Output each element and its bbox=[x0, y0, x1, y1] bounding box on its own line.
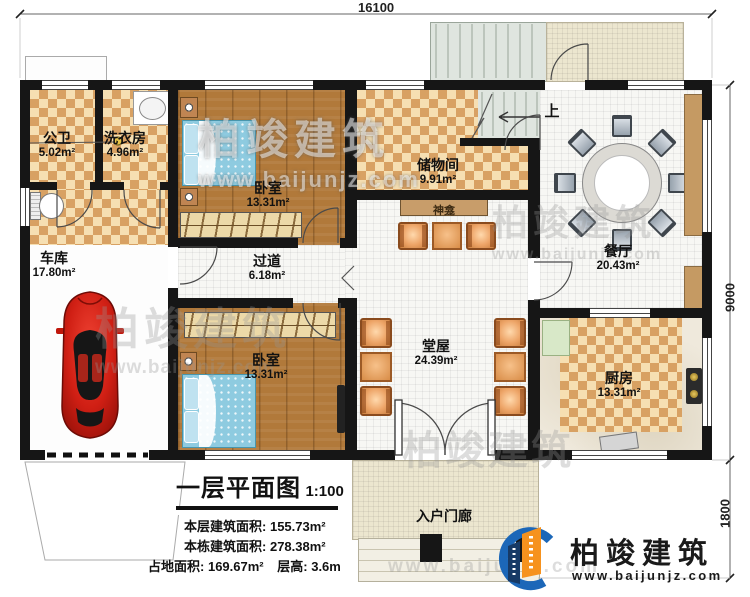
room-label-garage: 车库 17.80m² bbox=[33, 250, 76, 280]
room-name: 入户门廊 bbox=[416, 508, 472, 524]
pillow bbox=[184, 155, 199, 185]
wall-segment bbox=[310, 450, 395, 460]
wall-segment bbox=[345, 190, 540, 200]
room-area: 9.91m² bbox=[417, 173, 459, 187]
plan-title: 一层平面图 bbox=[176, 475, 301, 502]
legend-value: 278.38m² bbox=[270, 539, 326, 554]
room-label-dining: 餐厅 20.43m² bbox=[597, 243, 640, 273]
room-area: 4.96m² bbox=[104, 146, 146, 160]
room-name: 厨房 bbox=[598, 370, 641, 386]
armchair bbox=[360, 318, 392, 348]
room-name: 洗衣房 bbox=[104, 130, 146, 146]
room-label-porch: 入户门廊 bbox=[416, 508, 472, 524]
dining-chair bbox=[612, 115, 632, 137]
legend-label: 层高: bbox=[267, 559, 307, 574]
window bbox=[20, 188, 30, 226]
wall-segment bbox=[20, 90, 30, 460]
legend-value: 155.73m² bbox=[270, 519, 326, 534]
room-area: 13.31m² bbox=[245, 368, 288, 382]
stair-landing bbox=[546, 22, 684, 82]
wall-segment bbox=[178, 238, 298, 248]
room-label-bedroom2: 卧室 13.31m² bbox=[245, 352, 288, 382]
wall-segment bbox=[650, 308, 712, 318]
interior-stair-flight bbox=[478, 90, 540, 138]
wall-segment bbox=[345, 90, 357, 238]
room-name: 公卫 bbox=[39, 130, 75, 146]
room-label-kitchen: 厨房 13.31m² bbox=[598, 370, 641, 400]
room-area: 24.39m² bbox=[415, 354, 458, 368]
legend-label: 占地面积: bbox=[148, 559, 204, 574]
logo-brand-text: 柏竣建筑 bbox=[570, 530, 714, 572]
wall-segment bbox=[95, 90, 103, 182]
wall-segment bbox=[160, 182, 168, 190]
legend: 一层平面图 1:100 本层建筑面积: 155.73m² 本栋建筑面积: 278… bbox=[176, 468, 344, 577]
armchair bbox=[466, 222, 496, 250]
wall-segment bbox=[149, 450, 205, 460]
window bbox=[205, 450, 310, 460]
toilet-bowl bbox=[39, 193, 64, 219]
legend-value: 3.6m bbox=[311, 559, 341, 574]
legend-row: 本层建筑面积: 155.73m² bbox=[176, 517, 344, 537]
nightstand bbox=[180, 352, 197, 371]
wall-segment bbox=[168, 288, 178, 450]
plan-scale: 1:100 bbox=[305, 483, 343, 500]
room-area: 13.31m² bbox=[247, 196, 290, 210]
room-label-hallway: 过道 6.18m² bbox=[249, 253, 285, 283]
wall-segment bbox=[168, 90, 178, 247]
wall-segment bbox=[528, 308, 590, 318]
company-logo: 柏竣建筑 www.baijunjz.com bbox=[484, 524, 564, 597]
armchair bbox=[398, 222, 428, 250]
logo-mark-icon bbox=[484, 524, 564, 592]
wardrobe bbox=[180, 212, 302, 238]
window bbox=[112, 80, 160, 90]
room-area: 6.18m² bbox=[249, 269, 285, 283]
room-area: 20.43m² bbox=[597, 259, 640, 273]
window bbox=[366, 80, 424, 90]
pillow bbox=[184, 378, 199, 410]
legend-label: 本层建筑面积: bbox=[184, 519, 266, 534]
tv bbox=[337, 385, 345, 433]
driveway bbox=[25, 462, 185, 560]
wall-segment bbox=[528, 140, 540, 258]
room-area: 17.80m² bbox=[33, 266, 76, 280]
wall-segment bbox=[90, 182, 124, 190]
window bbox=[42, 80, 88, 90]
wall-segment bbox=[338, 298, 357, 308]
dining-chair bbox=[554, 173, 576, 193]
room-label-bedroom1: 卧室 13.31m² bbox=[247, 180, 290, 210]
room-name: 堂屋 bbox=[415, 338, 458, 354]
window bbox=[628, 80, 684, 90]
armchair bbox=[494, 386, 526, 416]
wall-segment bbox=[528, 300, 540, 450]
legend-row: 占地面积: 169.67m² 层高: 3.6m bbox=[148, 557, 344, 577]
legend-title-row: 一层平面图 1:100 bbox=[176, 468, 344, 503]
porch-pillar bbox=[420, 534, 442, 562]
pass-through-window bbox=[590, 308, 650, 318]
nightstand bbox=[180, 97, 198, 118]
room-label-bath: 公卫 5.02m² bbox=[39, 130, 75, 160]
kitchen-counter bbox=[542, 320, 570, 356]
dimension-top: 16100 bbox=[358, 0, 394, 15]
laundry-sink bbox=[139, 97, 166, 120]
room-name: 餐厅 bbox=[597, 243, 640, 259]
legend-value: 169.67m² bbox=[208, 559, 264, 574]
nightstand bbox=[180, 188, 198, 206]
sideboard-cabinet bbox=[684, 266, 704, 312]
room-label-laundry: 洗衣房 4.96m² bbox=[104, 130, 146, 160]
exterior-stair-flight bbox=[430, 22, 548, 82]
car-top-view bbox=[56, 290, 124, 440]
legend-row: 本栋建筑面积: 278.38m² bbox=[176, 537, 344, 557]
room-area: 13.31m² bbox=[598, 386, 641, 400]
room-label-hall: 堂屋 24.39m² bbox=[415, 338, 458, 368]
pillow bbox=[184, 411, 199, 443]
side-table bbox=[494, 352, 526, 382]
wall-segment bbox=[340, 238, 357, 248]
room-label-shrine: 神龛 bbox=[433, 201, 455, 219]
armchair bbox=[494, 318, 526, 348]
dimension-right-upper: 9000 bbox=[723, 274, 738, 322]
dimension-right-lower: 1800 bbox=[718, 490, 733, 538]
room-name: 卧室 bbox=[247, 180, 290, 196]
wall-segment bbox=[345, 308, 357, 450]
wall-segment bbox=[495, 450, 572, 460]
room-name: 卧室 bbox=[245, 352, 288, 368]
room-name: 储物间 bbox=[417, 157, 459, 173]
wall-segment bbox=[178, 298, 293, 308]
room-name: 神龛 bbox=[433, 205, 455, 217]
room-label-storage: 储物间 9.91m² bbox=[417, 157, 459, 187]
wall-segment bbox=[20, 450, 45, 460]
wardrobe bbox=[184, 312, 336, 338]
stove-burner bbox=[690, 373, 698, 381]
room-name: 过道 bbox=[249, 253, 285, 269]
pillow bbox=[184, 124, 199, 154]
stair-up-label: 上 bbox=[544, 104, 559, 120]
floorplan-canvas: 柏竣建筑 www.baijunjz.com 柏竣建筑 www.baijunjz.… bbox=[0, 0, 750, 597]
side-table bbox=[432, 222, 462, 250]
window bbox=[205, 80, 313, 90]
room-area: 5.02m² bbox=[39, 146, 75, 160]
window bbox=[702, 120, 712, 232]
window bbox=[702, 338, 712, 426]
sideboard-cabinet bbox=[684, 94, 704, 236]
room-name: 车库 bbox=[33, 250, 76, 266]
legend-rule bbox=[176, 506, 338, 515]
up-text: 上 bbox=[544, 104, 559, 120]
stove-burner bbox=[690, 390, 698, 398]
legend-label: 本栋建筑面积: bbox=[184, 539, 266, 554]
dining-table-top bbox=[594, 155, 650, 211]
armchair bbox=[360, 386, 392, 416]
wall-segment bbox=[667, 450, 712, 460]
logo-website-text: www.baijunjz.com bbox=[572, 568, 723, 583]
wall-segment bbox=[30, 182, 57, 190]
window bbox=[572, 450, 667, 460]
side-table bbox=[360, 352, 392, 382]
